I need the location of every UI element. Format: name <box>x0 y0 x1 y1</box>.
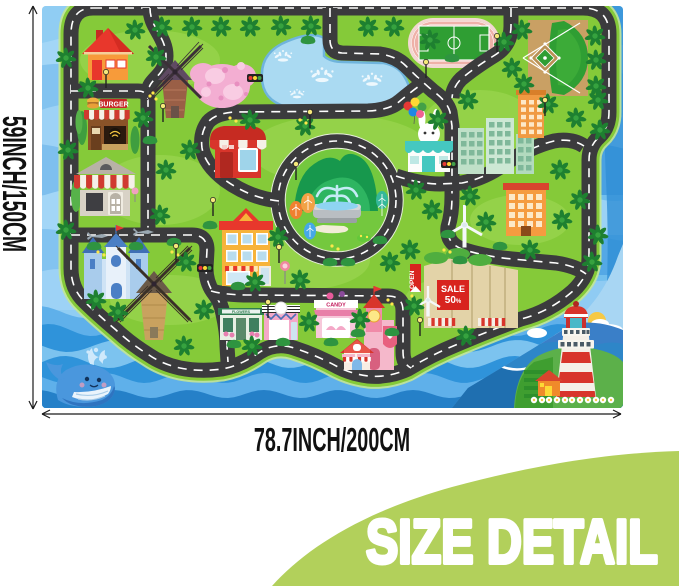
svg-text:59INCH/150CM: 59INCH/150CM <box>0 116 32 252</box>
svg-text:BURGER: BURGER <box>98 101 128 108</box>
svg-text:OPEN: OPEN <box>409 270 416 289</box>
svg-text:78.7INCH/200CM: 78.7INCH/200CM <box>254 421 410 459</box>
svg-text:SIZE DETAIL: SIZE DETAIL <box>366 507 658 576</box>
svg-text:CANDY: CANDY <box>326 303 346 309</box>
svg-text:SALE: SALE <box>441 284 465 294</box>
svg-text:FLOWERS: FLOWERS <box>232 310 251 314</box>
